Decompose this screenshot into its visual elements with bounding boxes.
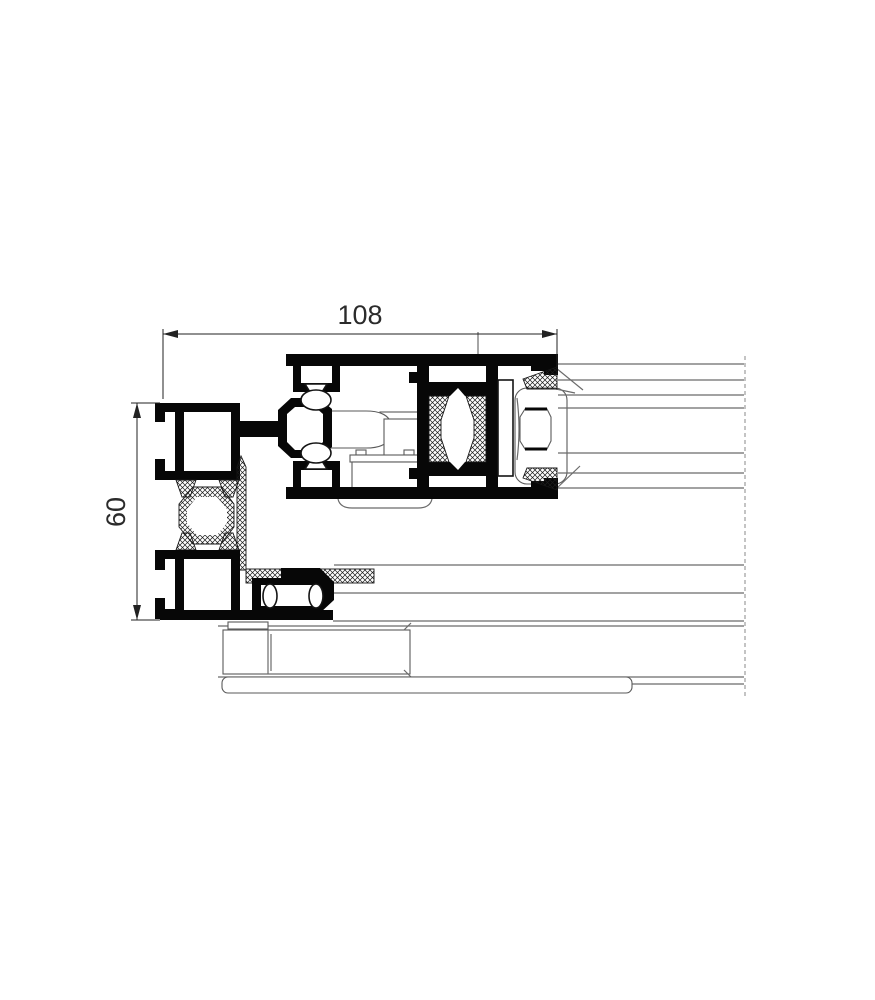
dim-width-label: 108 <box>337 300 382 330</box>
technical-drawing: 108 60 <box>0 0 875 1000</box>
packer-bar <box>222 677 632 693</box>
thermal-strut-left <box>429 396 449 462</box>
bead-gasket-lip-1 <box>263 584 277 608</box>
subsill-body <box>223 630 410 674</box>
glazing-rebate <box>498 380 513 476</box>
glazing-spacer-clip <box>520 409 551 449</box>
gasket-tail-top <box>556 368 583 390</box>
sash-bottom-wall <box>286 487 558 499</box>
thermal-box-left-wall <box>417 366 429 487</box>
lock-body <box>384 419 420 458</box>
subsill-profile <box>222 622 632 693</box>
screw-channel-cover <box>338 499 432 508</box>
bulb-gasket-top <box>301 390 331 410</box>
profile-section-canvas: 108 60 <box>0 0 875 1000</box>
subsill-tab <box>228 622 268 629</box>
thermal-box-right-wall <box>486 366 498 487</box>
frame-arm <box>240 421 278 437</box>
bead-gasket-lip-2 <box>309 584 323 608</box>
frame-upper-top <box>155 403 240 412</box>
frame-lower-top <box>155 550 240 559</box>
sash-top-wall <box>286 354 558 366</box>
dim-height-label: 60 <box>101 497 131 527</box>
bulb-gasket-bottom <box>301 443 331 463</box>
lock-base-plate <box>350 455 420 462</box>
thermal-strut-right <box>466 396 486 462</box>
lock-cam <box>330 411 392 448</box>
dimension-height: 60 <box>101 403 160 620</box>
